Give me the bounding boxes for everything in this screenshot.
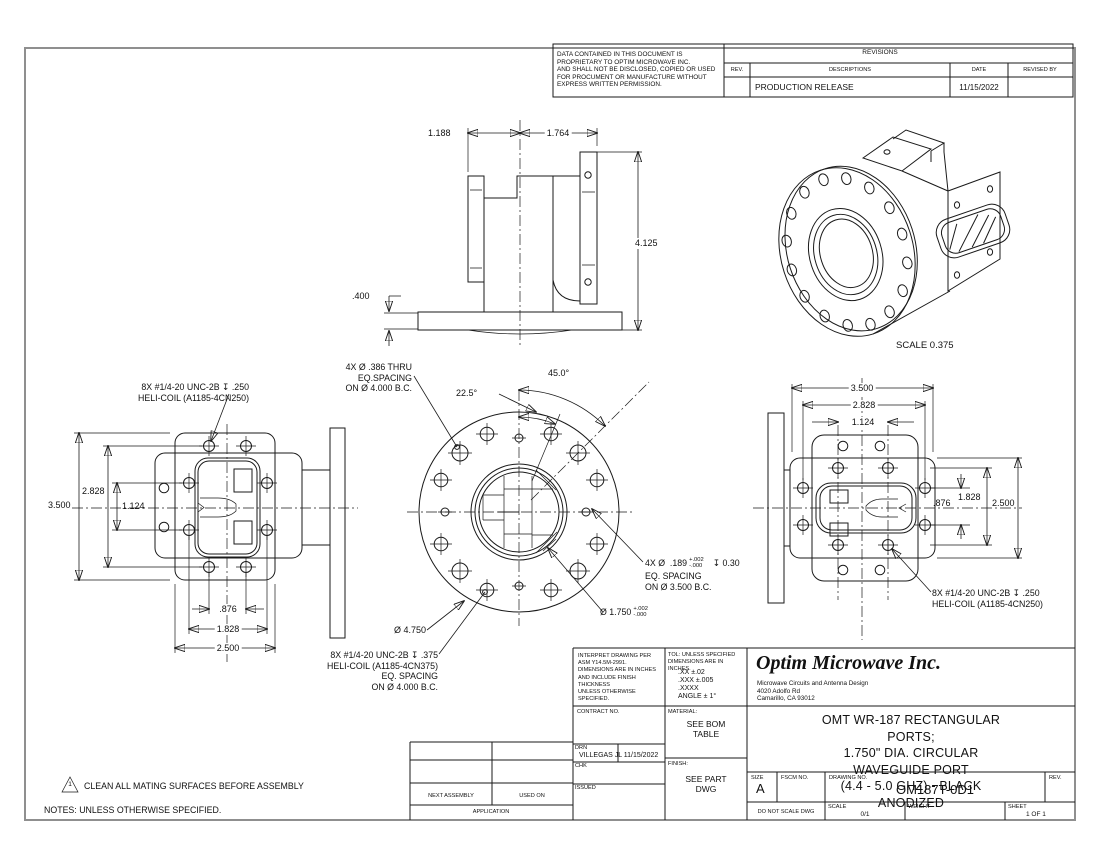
- center-bore-callout: Ø 1.750 +.002 -.000: [600, 606, 648, 618]
- dim-flange-diameter: Ø 4.750: [394, 625, 426, 636]
- note-flag-number: 1: [68, 781, 72, 789]
- drawing-number: OM187T-0D1: [896, 783, 974, 797]
- sheet-value: 1 OF 1: [1026, 811, 1046, 819]
- pin-tol-minus: -.000: [689, 563, 704, 569]
- used-on-label: USED ON: [519, 793, 545, 800]
- company-address2: Camarillo, CA 93012: [757, 695, 815, 702]
- bore-callout-tolerance: +.002 -.000: [633, 606, 648, 618]
- pin-callout-depth: ↧ 0.30: [713, 558, 740, 569]
- material-label: MATERIAL:: [668, 709, 697, 716]
- dim-front-4125: 4.125: [633, 238, 660, 249]
- front-view-lines: [384, 120, 642, 348]
- revisions-title: REVISIONS: [862, 49, 897, 57]
- weight-label: WEIGHT: [908, 804, 930, 811]
- pin-callout-tolerance: +.002 -.000: [689, 557, 704, 569]
- drn-name: VILLEGAS JL: [579, 752, 622, 760]
- drawing-no-label: DRAWING NO.: [829, 775, 867, 782]
- finish-label: FINISH:: [668, 761, 688, 768]
- size-value: A: [756, 782, 765, 796]
- sheet-label: SHEET: [1008, 804, 1027, 811]
- dim-left-3500: 3.500: [48, 500, 71, 511]
- issued-label: ISSUED: [575, 785, 596, 792]
- do-not-scale-label: DO NOT SCALE DWG: [758, 809, 815, 816]
- dim-left-2828: 2.828: [82, 486, 105, 497]
- revisions-col-rev: REV.: [731, 67, 744, 74]
- dim-left-2500: 2.500: [215, 643, 242, 654]
- company-name: Optim Microwave Inc.: [756, 652, 941, 674]
- dim-right-876: .876: [933, 498, 951, 509]
- contract-no-label: CONTRACT NO.: [577, 709, 619, 716]
- next-assembly-label: NEXT ASSEMBLY: [428, 793, 474, 800]
- dim-left-1828: 1.828: [215, 624, 242, 635]
- dim-angle-225: 22.5°: [456, 388, 477, 399]
- rev-label: REV.: [1049, 775, 1062, 782]
- drawing-sheet: DATA CONTAINED IN THIS DOCUMENT IS PROPR…: [0, 0, 1100, 850]
- isometric-view-lines: [758, 130, 1014, 354]
- dim-right-2828: 2.828: [851, 400, 878, 411]
- scale-label: SCALE: [828, 804, 846, 811]
- notes-header: NOTES: UNLESS OTHERWISE SPECIFIED.: [44, 805, 221, 816]
- dim-front-1188: 1.188: [428, 128, 451, 139]
- center-pin-holes-line2: EQ. SPACING: [645, 571, 702, 582]
- dim-right-1828: 1.828: [958, 492, 981, 503]
- dim-right-1124: 1.124: [850, 417, 877, 428]
- dim-right-3500: 3.500: [849, 383, 876, 394]
- right-view-thread-callout: 8X #1/4-20 UNC-2B ↧ .250 HELI-COIL (A118…: [932, 588, 1043, 609]
- left-view-thread-callout: 8X #1/4-20 UNC-2B ↧ .250 HELI-COIL (A118…: [138, 382, 249, 403]
- center-pin-holes-callout: 4X Ø .189 +.002 -.000 ↧ 0.30: [645, 557, 740, 569]
- drn-date: 11/15/2022: [624, 752, 659, 760]
- pin-callout-prefix: 4X Ø .189: [645, 558, 687, 569]
- chk-label: CHK: [575, 763, 587, 770]
- dim-left-876: .876: [217, 604, 239, 615]
- dim-angle-450: 45.0°: [548, 368, 569, 379]
- dim-left-1124: 1.124: [122, 501, 145, 512]
- fscm-label: FSCM NO.: [781, 775, 808, 782]
- center-pin-holes-line3: ON Ø 3.500 B.C.: [645, 582, 712, 593]
- center-helicoil-callout: 8X #1/4-20 UNC-2B ↧ .375 HELI-COIL (A118…: [327, 650, 438, 692]
- company-tagline: Microwave Circuits and Antenna Design: [757, 680, 868, 687]
- scale-value: 0/1: [860, 811, 869, 819]
- dim-right-2500: 2.500: [992, 498, 1015, 509]
- center-thru-holes-callout: 4X Ø .386 THRU EQ.SPACING ON Ø 4.000 B.C…: [346, 362, 413, 394]
- bore-callout-prefix: Ø 1.750: [600, 607, 631, 618]
- note-text: CLEAN ALL MATING SURFACES BEFORE ASSEMBL…: [84, 781, 304, 792]
- interpret-note: INTERPRET DRAWING PER ASM Y14.5M-2991. D…: [578, 653, 666, 703]
- revisions-col-descriptions: DESCRIPTIONS: [829, 67, 871, 74]
- revision-date: 11/15/2022: [959, 83, 998, 94]
- revision-description: PRODUCTION RELEASE: [755, 82, 854, 93]
- material-value: SEE BOM TABLE: [687, 719, 726, 739]
- application-label: APPLICATION: [473, 809, 510, 816]
- left-view-lines: [72, 394, 358, 662]
- finish-value: SEE PART DWG: [685, 774, 726, 794]
- dim-front-1764: 1.764: [545, 128, 572, 139]
- proprietary-notice: DATA CONTAINED IN THIS DOCUMENT IS PROPR…: [557, 51, 725, 89]
- iso-scale-label: SCALE 0.375: [896, 341, 954, 352]
- revisions-col-revised-by: REVISED BY: [1023, 67, 1057, 74]
- bore-tol-minus: -.000: [633, 612, 648, 618]
- dim-front-400: .400: [352, 291, 370, 302]
- revisions-col-date: DATE: [972, 67, 987, 74]
- tolerance-values: .XX ±.02 .XXX ±.005 .XXXX ANGLE ± 1°: [678, 669, 716, 701]
